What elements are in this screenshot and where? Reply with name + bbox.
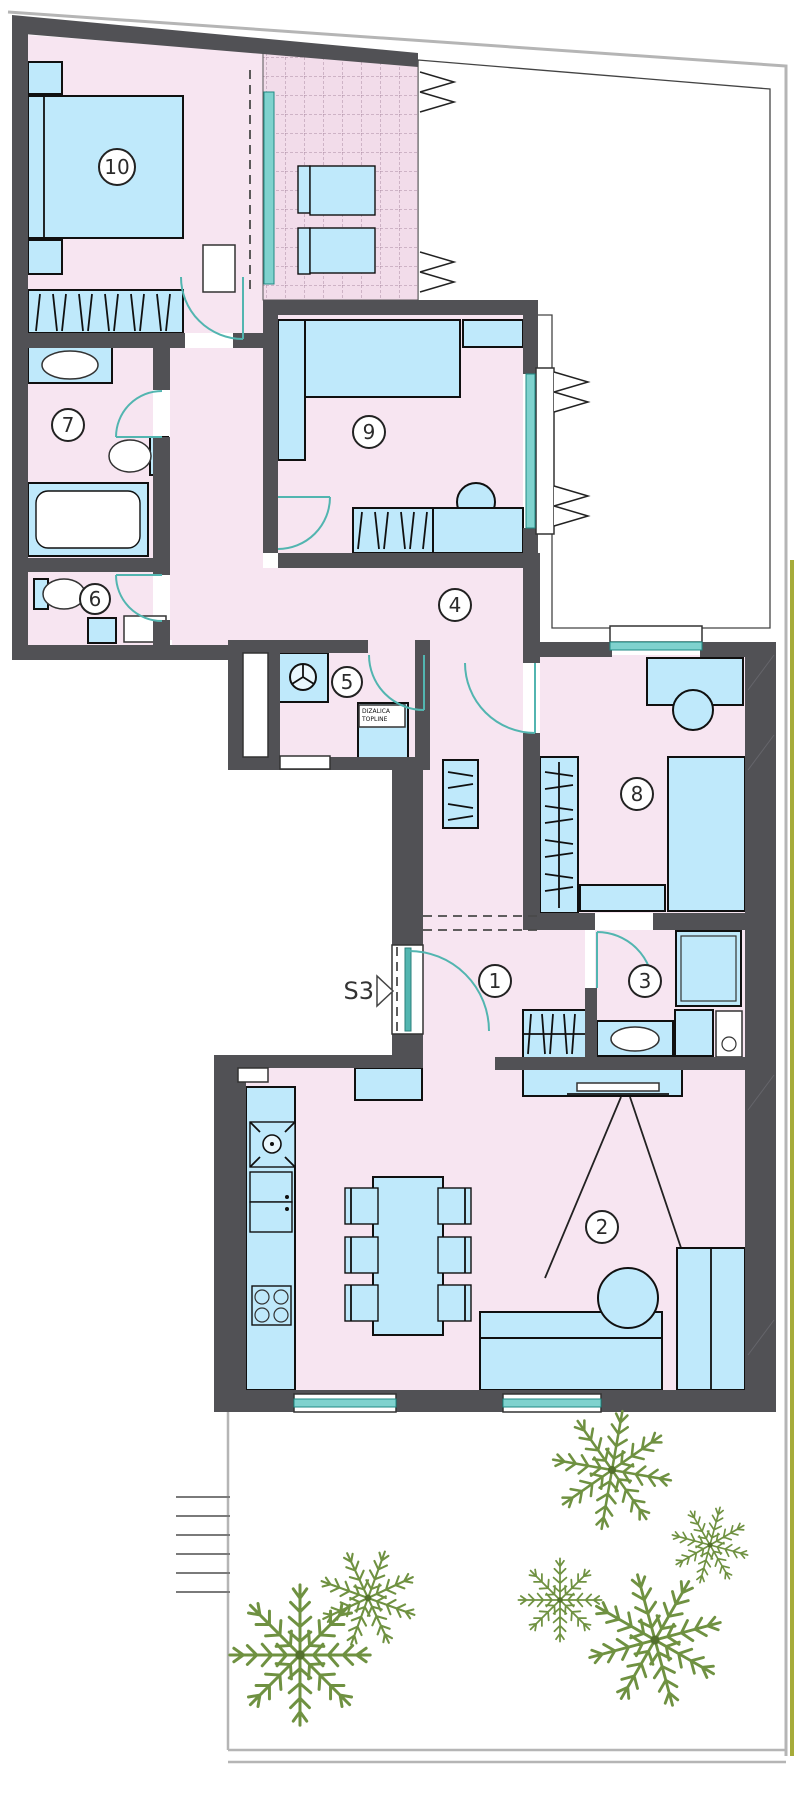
wall-room8-bottom-right <box>653 913 745 930</box>
wall-right <box>745 642 776 1412</box>
lounge-chair <box>310 228 375 273</box>
nightstand <box>28 62 62 94</box>
svg-text:10: 10 <box>104 155 129 179</box>
wall-room2-left <box>214 1055 246 1412</box>
wardrobe-room-9 <box>353 508 433 553</box>
room-label-1: 1 <box>479 965 511 997</box>
sofa-seat <box>480 1338 662 1390</box>
fern-plant-icon <box>501 1541 619 1659</box>
room-label-7: 7 <box>52 409 84 441</box>
room-label-10: 10 <box>99 149 135 185</box>
svg-text:7: 7 <box>62 413 75 437</box>
window-room2-right <box>503 1399 601 1407</box>
window-room9 <box>526 374 535 528</box>
oven-fridge-unit <box>250 1172 292 1232</box>
floorplan-page: DIZALICA TOPLINE <box>0 0 800 1812</box>
entry-label: S3 <box>343 976 393 1006</box>
wall-room10-bottom <box>28 333 185 348</box>
triangle-right-icon <box>377 976 393 1006</box>
lounge-chair-back <box>298 228 310 274</box>
wall-bath-divider <box>153 620 170 645</box>
room-label-8: 8 <box>621 778 653 810</box>
wall-room5-top <box>228 640 368 653</box>
dining-table <box>373 1177 443 1335</box>
wall-bath-divider <box>153 437 170 575</box>
room-label-4: 4 <box>439 589 471 621</box>
svg-text:3: 3 <box>639 969 652 993</box>
window-sill-room8 <box>610 626 702 642</box>
window-room8 <box>610 642 702 650</box>
toilet-room-3 <box>716 1011 742 1057</box>
sink-room-7 <box>42 351 98 379</box>
toilet-room-7 <box>109 440 151 472</box>
lounge-chair-back <box>298 166 310 213</box>
room-label-2: 2 <box>586 1211 618 1243</box>
wall-room10-bottom-stub <box>233 333 263 348</box>
svg-text:8: 8 <box>631 782 644 806</box>
svg-text:2: 2 <box>596 1215 609 1239</box>
shelf-room-9 <box>463 320 523 347</box>
window-sill-room9 <box>536 368 554 534</box>
wall-niche <box>280 756 330 769</box>
bench-room-8 <box>580 885 665 911</box>
sliding-door-room10-terrace <box>264 92 274 284</box>
terrace-boundary <box>228 1412 786 1762</box>
coffee-table <box>598 1268 658 1328</box>
wall-niche-left <box>228 645 243 770</box>
bed-room-9 <box>305 320 460 397</box>
wall-bath-divider <box>153 348 170 390</box>
wall-niche-right <box>268 653 280 770</box>
sink-room-3 <box>611 1027 659 1051</box>
lounge-chair <box>310 166 375 215</box>
lightwell <box>243 653 268 757</box>
fern-plant-icon <box>305 1535 432 1662</box>
floorplan-svg: DIZALICA TOPLINE <box>0 0 800 1812</box>
svg-text:5: 5 <box>341 670 354 694</box>
wall-room9-bottom <box>278 553 538 568</box>
unit-label: S3 <box>343 977 374 1005</box>
fern-plant-icon <box>657 1492 764 1599</box>
wall-room2-top-right <box>495 1057 745 1070</box>
washing-machine-icon <box>290 664 316 690</box>
toilet-room-6 <box>43 579 85 609</box>
heat-pump-label-line2: TOPLINE <box>361 716 388 723</box>
wall-room5-right <box>415 640 430 770</box>
wall-room9-right-upper <box>523 315 538 374</box>
shaft <box>203 245 235 292</box>
wardrobe-room-8-right <box>668 757 745 911</box>
wall-room9-top <box>263 300 538 315</box>
wall-niche-kitchen <box>238 1068 268 1082</box>
nightstand <box>28 240 62 274</box>
heat-pump-label-line1: DIZALICA <box>362 708 391 715</box>
wall-corridor-right-stub <box>523 733 540 757</box>
wall-corridor-left <box>392 770 423 947</box>
entry-door-leaf <box>405 948 411 1031</box>
wall-bottom-left <box>12 645 240 660</box>
floor-passage <box>423 1050 497 1070</box>
svg-text:9: 9 <box>363 420 376 444</box>
kitchen-sink <box>250 1122 295 1167</box>
chair-room-8 <box>673 690 713 730</box>
wall-room1-3-divider <box>585 988 597 1062</box>
room-label-9: 9 <box>353 416 385 448</box>
svg-text:6: 6 <box>89 587 102 611</box>
desk-room-9 <box>433 508 523 553</box>
cabinet-room-6 <box>88 618 116 643</box>
cooktop-icon <box>252 1286 291 1325</box>
room-label-6: 6 <box>80 584 110 614</box>
svg-text:4: 4 <box>449 593 462 617</box>
window-room2-left <box>294 1399 396 1407</box>
bathtub-inner <box>36 491 140 548</box>
svg-text:1: 1 <box>489 969 502 993</box>
wall-room9-left <box>263 300 278 553</box>
exterior-steps <box>176 1497 230 1592</box>
fern-plant-icon <box>543 1401 682 1540</box>
tv <box>577 1083 659 1091</box>
kitchen-sideboard <box>355 1068 422 1100</box>
wall-corridor-right-lower <box>523 757 540 930</box>
wall-room7-6-divider <box>28 558 153 572</box>
room-label-3: 3 <box>629 965 661 997</box>
shower <box>676 931 741 1006</box>
terrace-plants <box>230 1401 763 1733</box>
wall-room8-top-left <box>523 642 612 657</box>
room-label-5: 5 <box>332 667 362 697</box>
wall-room8-bottom-left <box>540 913 595 930</box>
cabinet-room-3 <box>675 1010 713 1056</box>
sofa-side-room-9 <box>278 320 305 460</box>
wall-left <box>12 28 28 660</box>
